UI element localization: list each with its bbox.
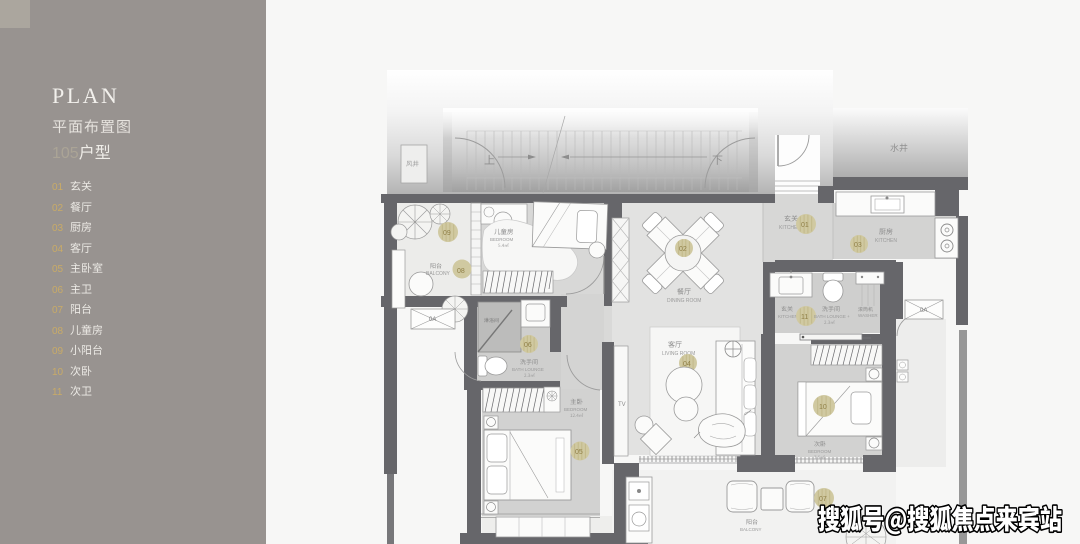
svg-text:05: 05 bbox=[52, 264, 64, 275]
svg-text:09: 09 bbox=[443, 230, 451, 237]
svg-text:11: 11 bbox=[801, 314, 808, 321]
svg-text:10: 10 bbox=[819, 404, 827, 411]
svg-text:KITCHEN: KITCHEN bbox=[778, 314, 798, 319]
svg-text:0A: 0A bbox=[920, 308, 927, 314]
svg-text:BALCONY: BALCONY bbox=[740, 527, 762, 532]
svg-text:03: 03 bbox=[52, 223, 64, 234]
svg-text:0A: 0A bbox=[429, 317, 436, 323]
svg-text:01: 01 bbox=[52, 182, 64, 193]
svg-text:DINING ROOM: DINING ROOM bbox=[667, 298, 701, 304]
svg-text:08: 08 bbox=[457, 268, 465, 275]
svg-text:06: 06 bbox=[524, 342, 532, 349]
svg-text:BEDROOM: BEDROOM bbox=[490, 237, 514, 242]
svg-text:10: 10 bbox=[52, 367, 64, 378]
svg-text:11: 11 bbox=[52, 387, 63, 398]
svg-text:05: 05 bbox=[575, 449, 583, 456]
svg-text:WASHER: WASHER bbox=[858, 313, 878, 318]
svg-text:01: 01 bbox=[801, 222, 809, 229]
svg-text:06: 06 bbox=[52, 285, 64, 296]
svg-text:BATH LOUNGE: BATH LOUNGE bbox=[512, 367, 544, 372]
svg-text:BALCONY: BALCONY bbox=[426, 271, 451, 277]
svg-text:09: 09 bbox=[52, 346, 64, 357]
svg-text:02: 02 bbox=[52, 203, 64, 214]
svg-text:07: 07 bbox=[52, 305, 64, 316]
svg-text:02: 02 bbox=[679, 246, 687, 253]
svg-text:BEDROOM: BEDROOM bbox=[808, 449, 832, 454]
svg-text:07: 07 bbox=[819, 496, 827, 503]
svg-text:105户型: 105户型 bbox=[52, 144, 111, 162]
svg-text:TV: TV bbox=[618, 402, 626, 408]
svg-text:04: 04 bbox=[52, 244, 64, 255]
svg-text:03: 03 bbox=[854, 242, 862, 249]
svg-text:08: 08 bbox=[52, 326, 64, 337]
svg-text:KITCHEN: KITCHEN bbox=[875, 238, 897, 244]
svg-text:BATH LOUNGE +: BATH LOUNGE + bbox=[814, 314, 850, 319]
svg-text:PLAN: PLAN bbox=[52, 83, 119, 108]
svg-text:BEDROOM: BEDROOM bbox=[564, 407, 588, 412]
